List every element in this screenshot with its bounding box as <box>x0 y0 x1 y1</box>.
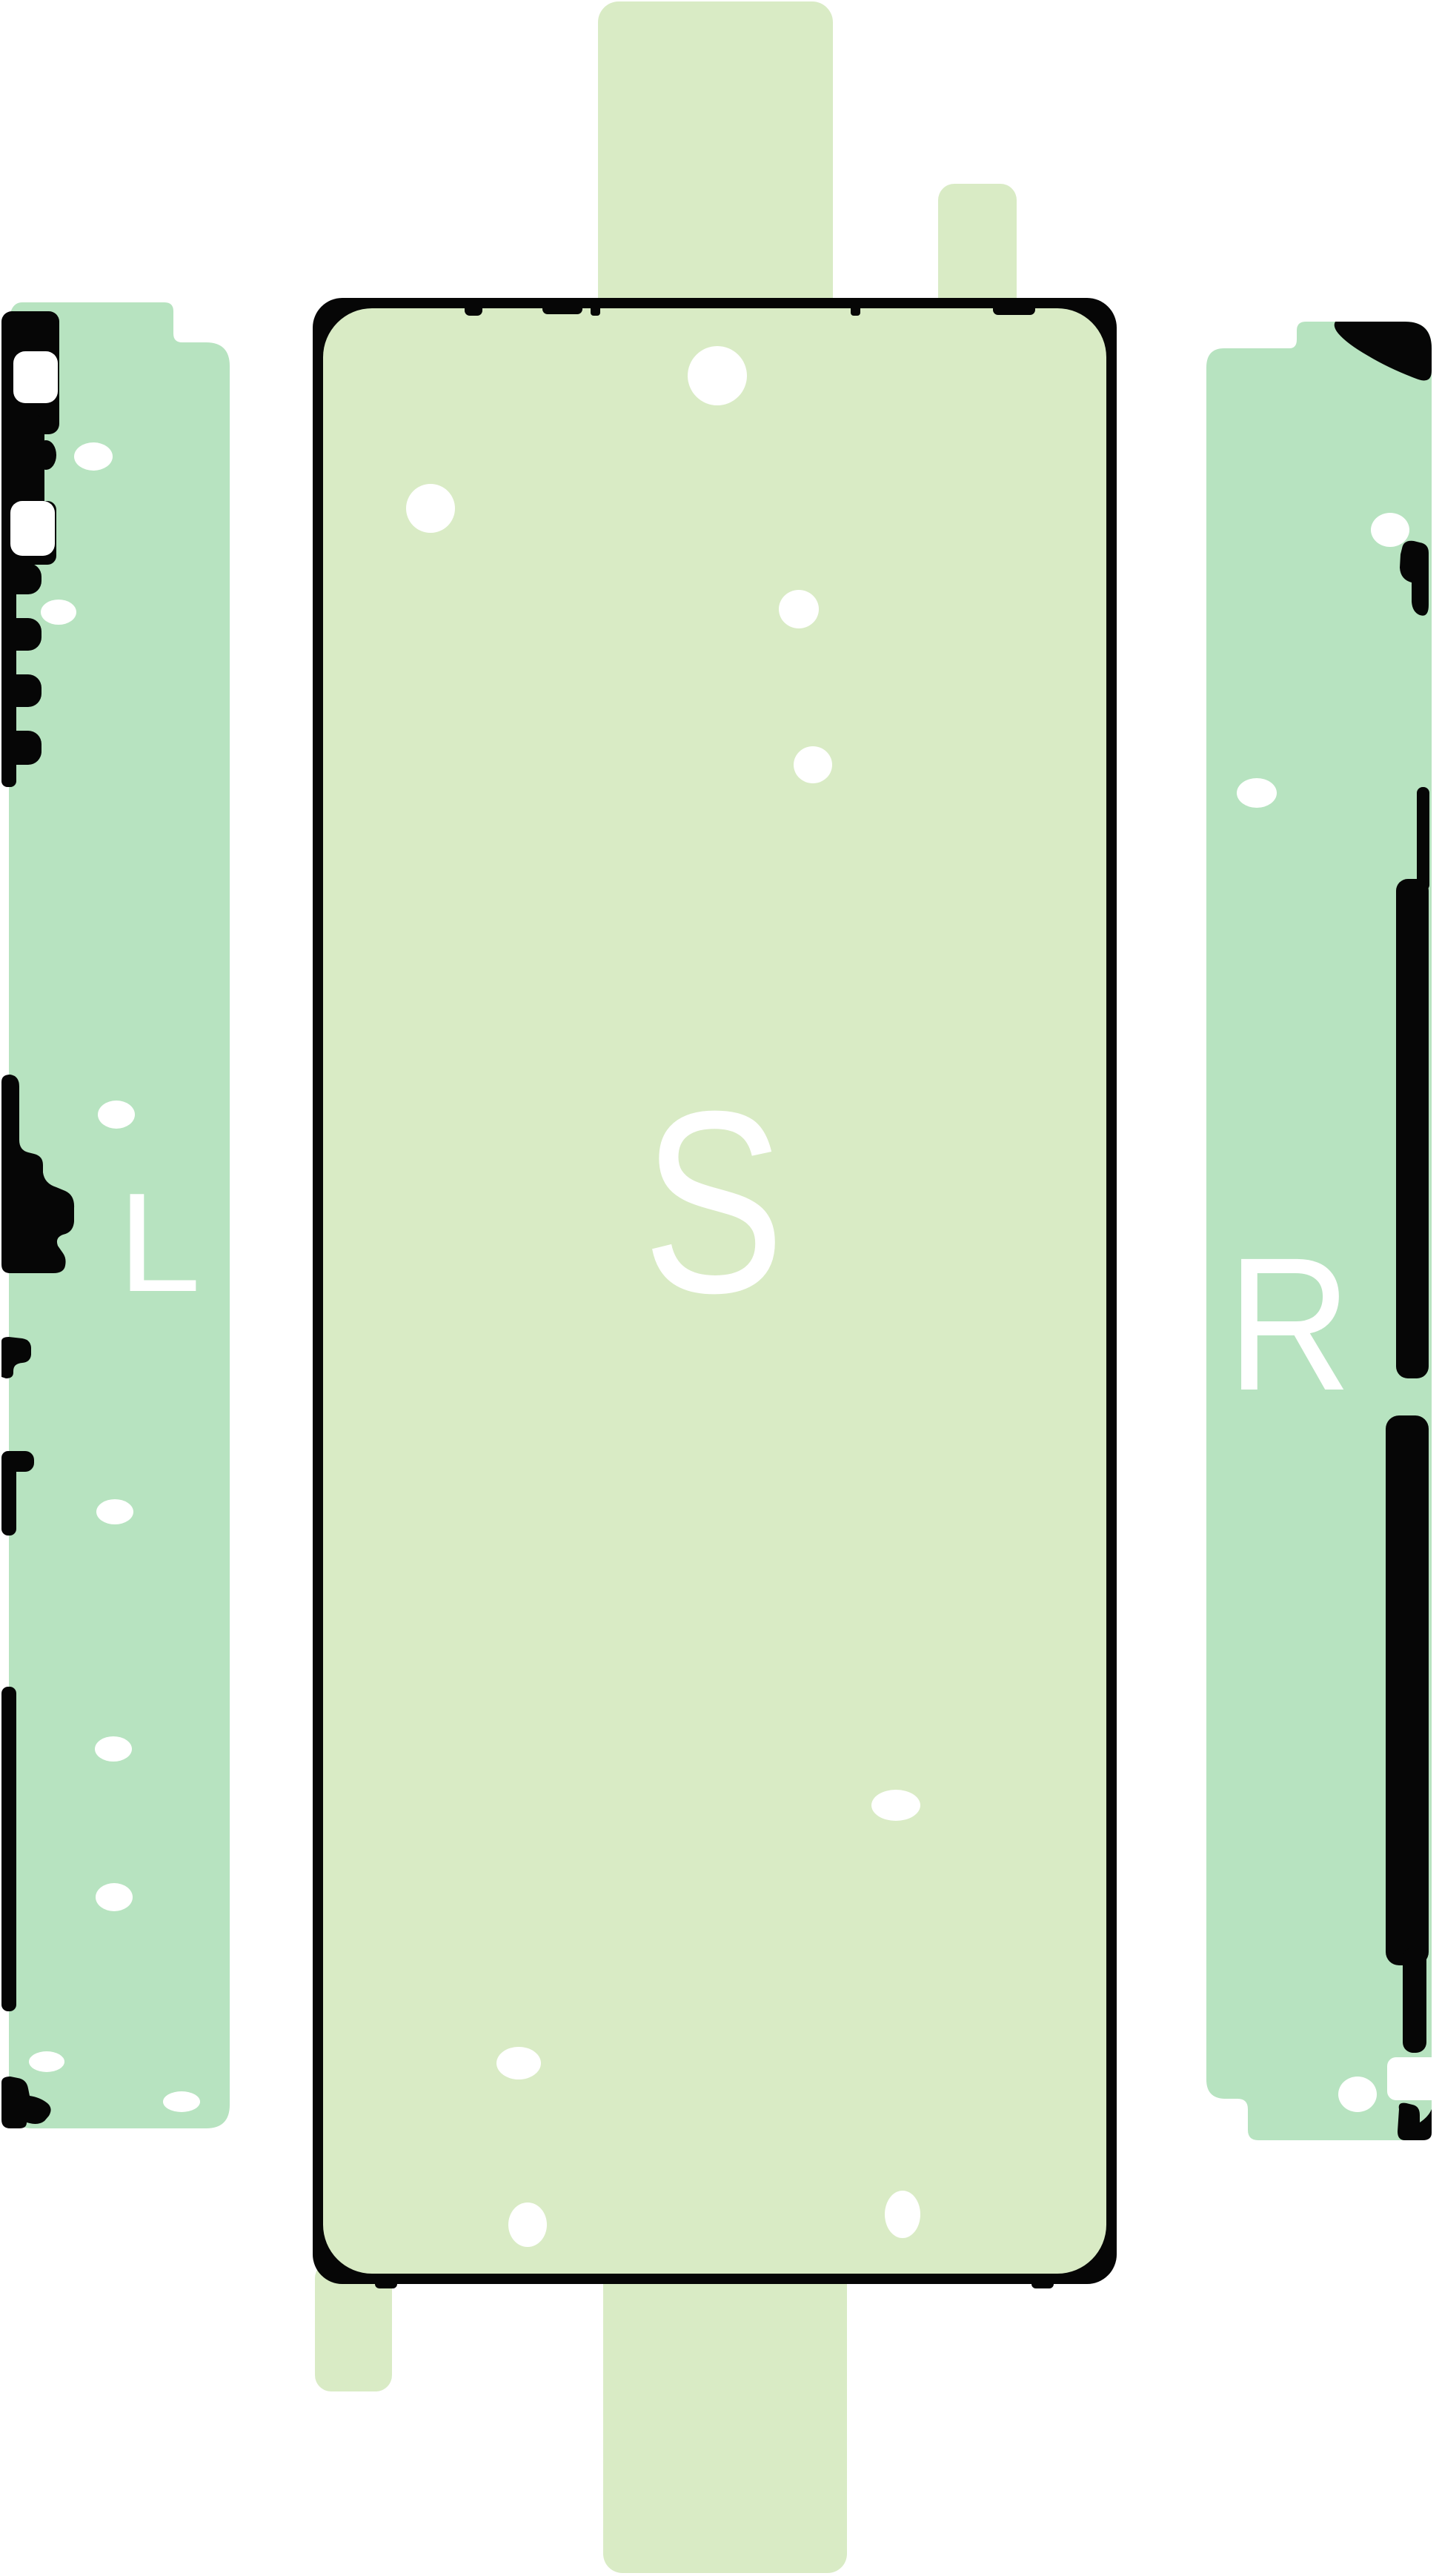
alignment-hole <box>1237 778 1277 808</box>
letter-l-label: L <box>118 1164 201 1321</box>
alignment-hole <box>885 2191 920 2238</box>
alignment-hole <box>96 1883 133 1911</box>
alignment-hole <box>74 442 113 471</box>
alignment-hole <box>29 2051 64 2072</box>
backing-tab-top <box>598 1 833 320</box>
alignment-hole <box>163 2091 200 2112</box>
alignment-hole <box>406 484 455 533</box>
alignment-hole <box>688 346 747 405</box>
center-sheet: S <box>313 298 1117 2288</box>
alignment-hole <box>98 1101 135 1129</box>
cutout-slot <box>13 351 58 403</box>
letter-s-label: S <box>642 1058 785 1347</box>
right-strip: R <box>1206 322 1442 2140</box>
alignment-hole <box>1338 2077 1377 2112</box>
alignment-hole <box>508 2202 547 2247</box>
alignment-hole <box>794 746 832 783</box>
alignment-hole <box>95 1736 132 1762</box>
alignment-hole <box>41 600 76 625</box>
letter-r-label: R <box>1227 1218 1352 1430</box>
left-strip: L <box>1 302 230 2128</box>
cutout-slot <box>10 501 55 556</box>
alignment-hole <box>496 2047 541 2079</box>
adhesive-kit-diagram: L R <box>0 0 1442 2576</box>
alignment-hole <box>1371 513 1409 547</box>
alignment-hole <box>779 590 819 628</box>
alignment-hole <box>871 1790 920 1821</box>
alignment-hole <box>96 1499 133 1524</box>
edge-notch <box>1387 2057 1442 2100</box>
backing-tab-bottom <box>603 2262 847 2573</box>
